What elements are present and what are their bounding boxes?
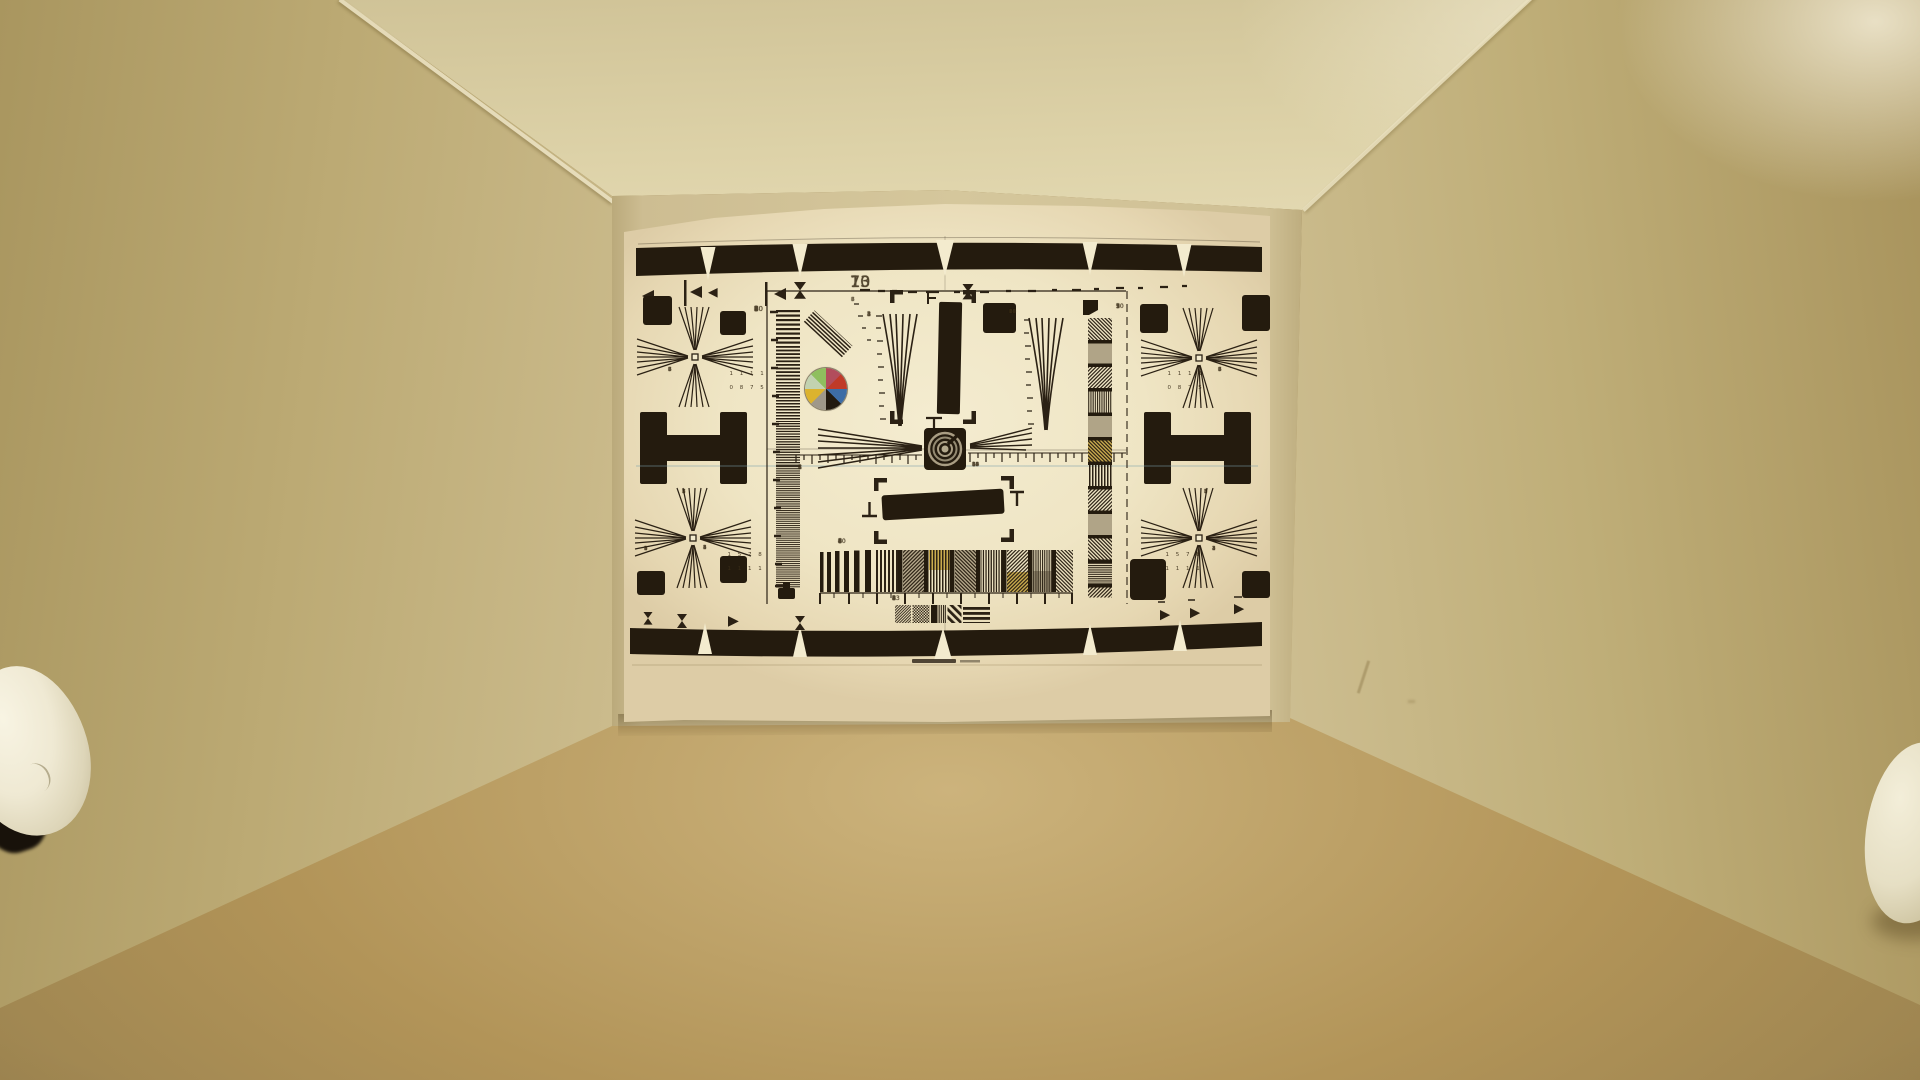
ring-target — [924, 428, 966, 470]
tick-number: 20 — [1009, 310, 1016, 316]
right-resolution-strip — [1083, 300, 1112, 598]
lightbox-photo: 71013 12345678910 12345 2346912141820 12… — [0, 0, 1920, 1080]
tick-number: 10 — [754, 306, 763, 313]
tick-number: 4 — [644, 547, 648, 553]
tick-number: 8 — [668, 368, 672, 374]
tick-number: 13 — [892, 596, 900, 602]
tilted-bar — [862, 476, 1024, 544]
tick-number: 10 — [1116, 304, 1124, 310]
cross-label-row: 1 5 7 8 — [728, 552, 765, 559]
cross-label-row: 1 5 7 8 — [1166, 552, 1203, 559]
top-bar — [636, 240, 1262, 306]
tick-number: 4 — [838, 539, 842, 545]
tick-number: 8 — [1218, 368, 1222, 374]
cross-label-row: 0 8 7 5 — [730, 385, 767, 392]
right-wall — [1280, 0, 1920, 1080]
tick-number: 5 — [851, 298, 855, 304]
cross-side-top-left: 5678 — [668, 368, 677, 410]
left-fan-scale: 12345 — [867, 312, 876, 422]
cross-label-top-right: 1 1 1 1 0 8 7 5 — [1142, 364, 1168, 399]
caption-smudge — [912, 659, 980, 663]
tick-number: 4 — [798, 465, 802, 471]
wall-scuff-mark — [1408, 700, 1415, 703]
tick-number: 6 — [972, 463, 976, 469]
tick-number: 5 — [682, 490, 686, 496]
cross-label-row: 1 1 1 1 — [730, 371, 767, 378]
tick-number: 5 — [867, 312, 871, 318]
cross-label-row: 1 1 1 1 — [1168, 371, 1205, 378]
cross-label-bottom-right: 1 5 7 8 1 1 1 1 — [1140, 545, 1166, 580]
slanted-wedge — [804, 304, 871, 358]
wedge-numbers: 8765 — [851, 298, 860, 348]
right-strip-numbers: 1357910 — [1116, 304, 1128, 596]
cross-side-bottom-right: 1785 — [1204, 490, 1213, 530]
cross-label-row: 0 8 7 5 — [1168, 385, 1205, 392]
tick-number: 4 — [1212, 547, 1216, 553]
cross-label-row: 1 1 1 1 — [728, 566, 765, 573]
cross-label-top-left: 1 1 1 1 0 8 7 5 — [704, 364, 730, 399]
test-chart-graphics — [624, 202, 1270, 722]
left-strip-numbers: 12345678910 — [754, 306, 770, 592]
vertical-wedge-fans — [876, 314, 1063, 430]
right-fan-scale: 2346912141820 — [1009, 310, 1022, 432]
cross-label-bottom-left: 1 5 7 8 1 1 1 1 — [702, 545, 728, 580]
pattern-blocks — [895, 605, 990, 623]
test-chart-paper: 71013 12345678910 12345 2346912141820 12… — [624, 202, 1270, 722]
cross-side-bottom-left: 1785 — [682, 490, 691, 530]
tick-number: 5 — [1204, 490, 1208, 496]
bottom-sweep — [820, 550, 1073, 604]
color-wheel — [805, 368, 847, 410]
cross-label-row: 1 1 1 1 — [1166, 566, 1203, 573]
tick-number: 13 — [850, 274, 870, 290]
cross-side-top-right: 5678 — [1218, 368, 1227, 410]
